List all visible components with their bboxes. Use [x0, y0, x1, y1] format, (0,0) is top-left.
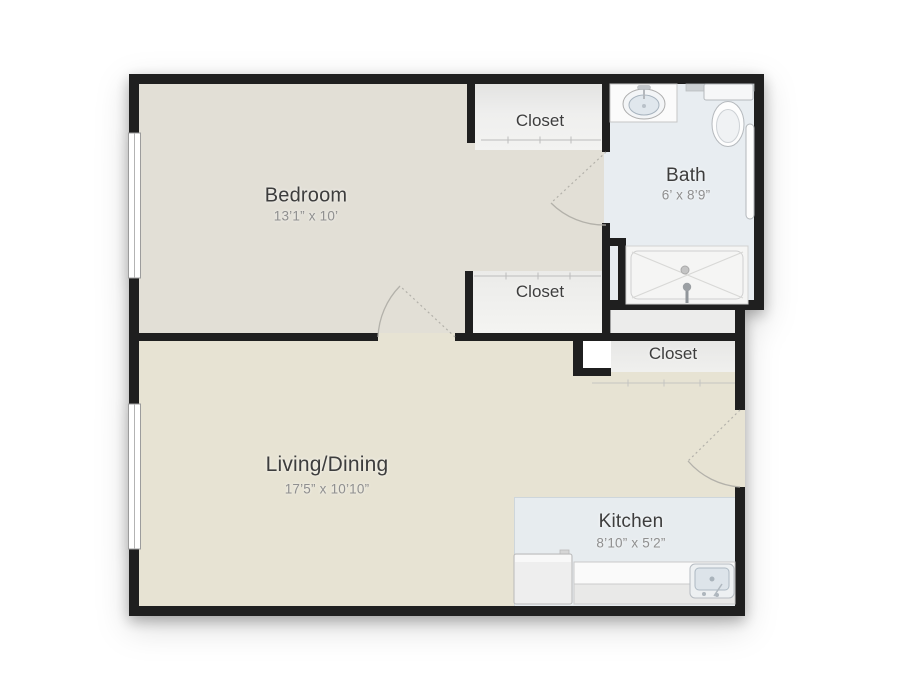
kitchen-label: Kitchen: [599, 511, 664, 533]
closet-middle-floor: [473, 271, 603, 333]
wall-shower-left: [618, 238, 626, 308]
wall-divider-b: [455, 333, 745, 341]
closet-middle-label: Closet: [516, 282, 564, 302]
doorway-bedroom-floor: [378, 333, 455, 341]
doorway-bath-floor: [604, 152, 612, 223]
bath-label: Bath: [666, 165, 706, 187]
wall-bath-left-upper: [602, 74, 610, 152]
wall-closet-middle-left: [465, 271, 473, 341]
hall-strip: [611, 310, 735, 333]
wall-right-lower-b: [735, 487, 745, 616]
bath-dimensions: 6’ x 8’9”: [662, 188, 711, 203]
wall-bedroom-closet: [467, 74, 475, 143]
wall-right-upper: [754, 74, 764, 310]
wall-notch: [583, 341, 611, 368]
wall-bottom: [129, 606, 745, 616]
wall-bath-left-lower: [602, 223, 610, 341]
kitchen-dimensions: 8’10” x 5’2”: [596, 536, 665, 551]
doorway-entry-floor: [735, 410, 745, 487]
bedroom-label: Bedroom: [265, 185, 348, 208]
wall-top: [130, 74, 764, 84]
wall-right-lower-a: [735, 303, 745, 410]
closet-entry-label: Closet: [649, 344, 697, 364]
living-dining-label: Living/Dining: [266, 453, 389, 477]
wall-notch-bottom: [573, 368, 611, 376]
floorplan-page: Bedroom 13’1” x 10’ Closet Bath 6’ x 8’9…: [0, 0, 900, 695]
living-dining-dimensions: 17’5” x 10’10”: [285, 482, 370, 497]
floorplan: Bedroom 13’1” x 10’ Closet Bath 6’ x 8’9…: [0, 0, 900, 695]
closet-top-label: Closet: [516, 111, 564, 131]
wall-shower-bottom: [610, 300, 764, 310]
wall-left: [129, 74, 139, 616]
wall-divider-a: [129, 333, 378, 341]
bedroom-dimensions: 13’1” x 10’: [274, 209, 339, 224]
